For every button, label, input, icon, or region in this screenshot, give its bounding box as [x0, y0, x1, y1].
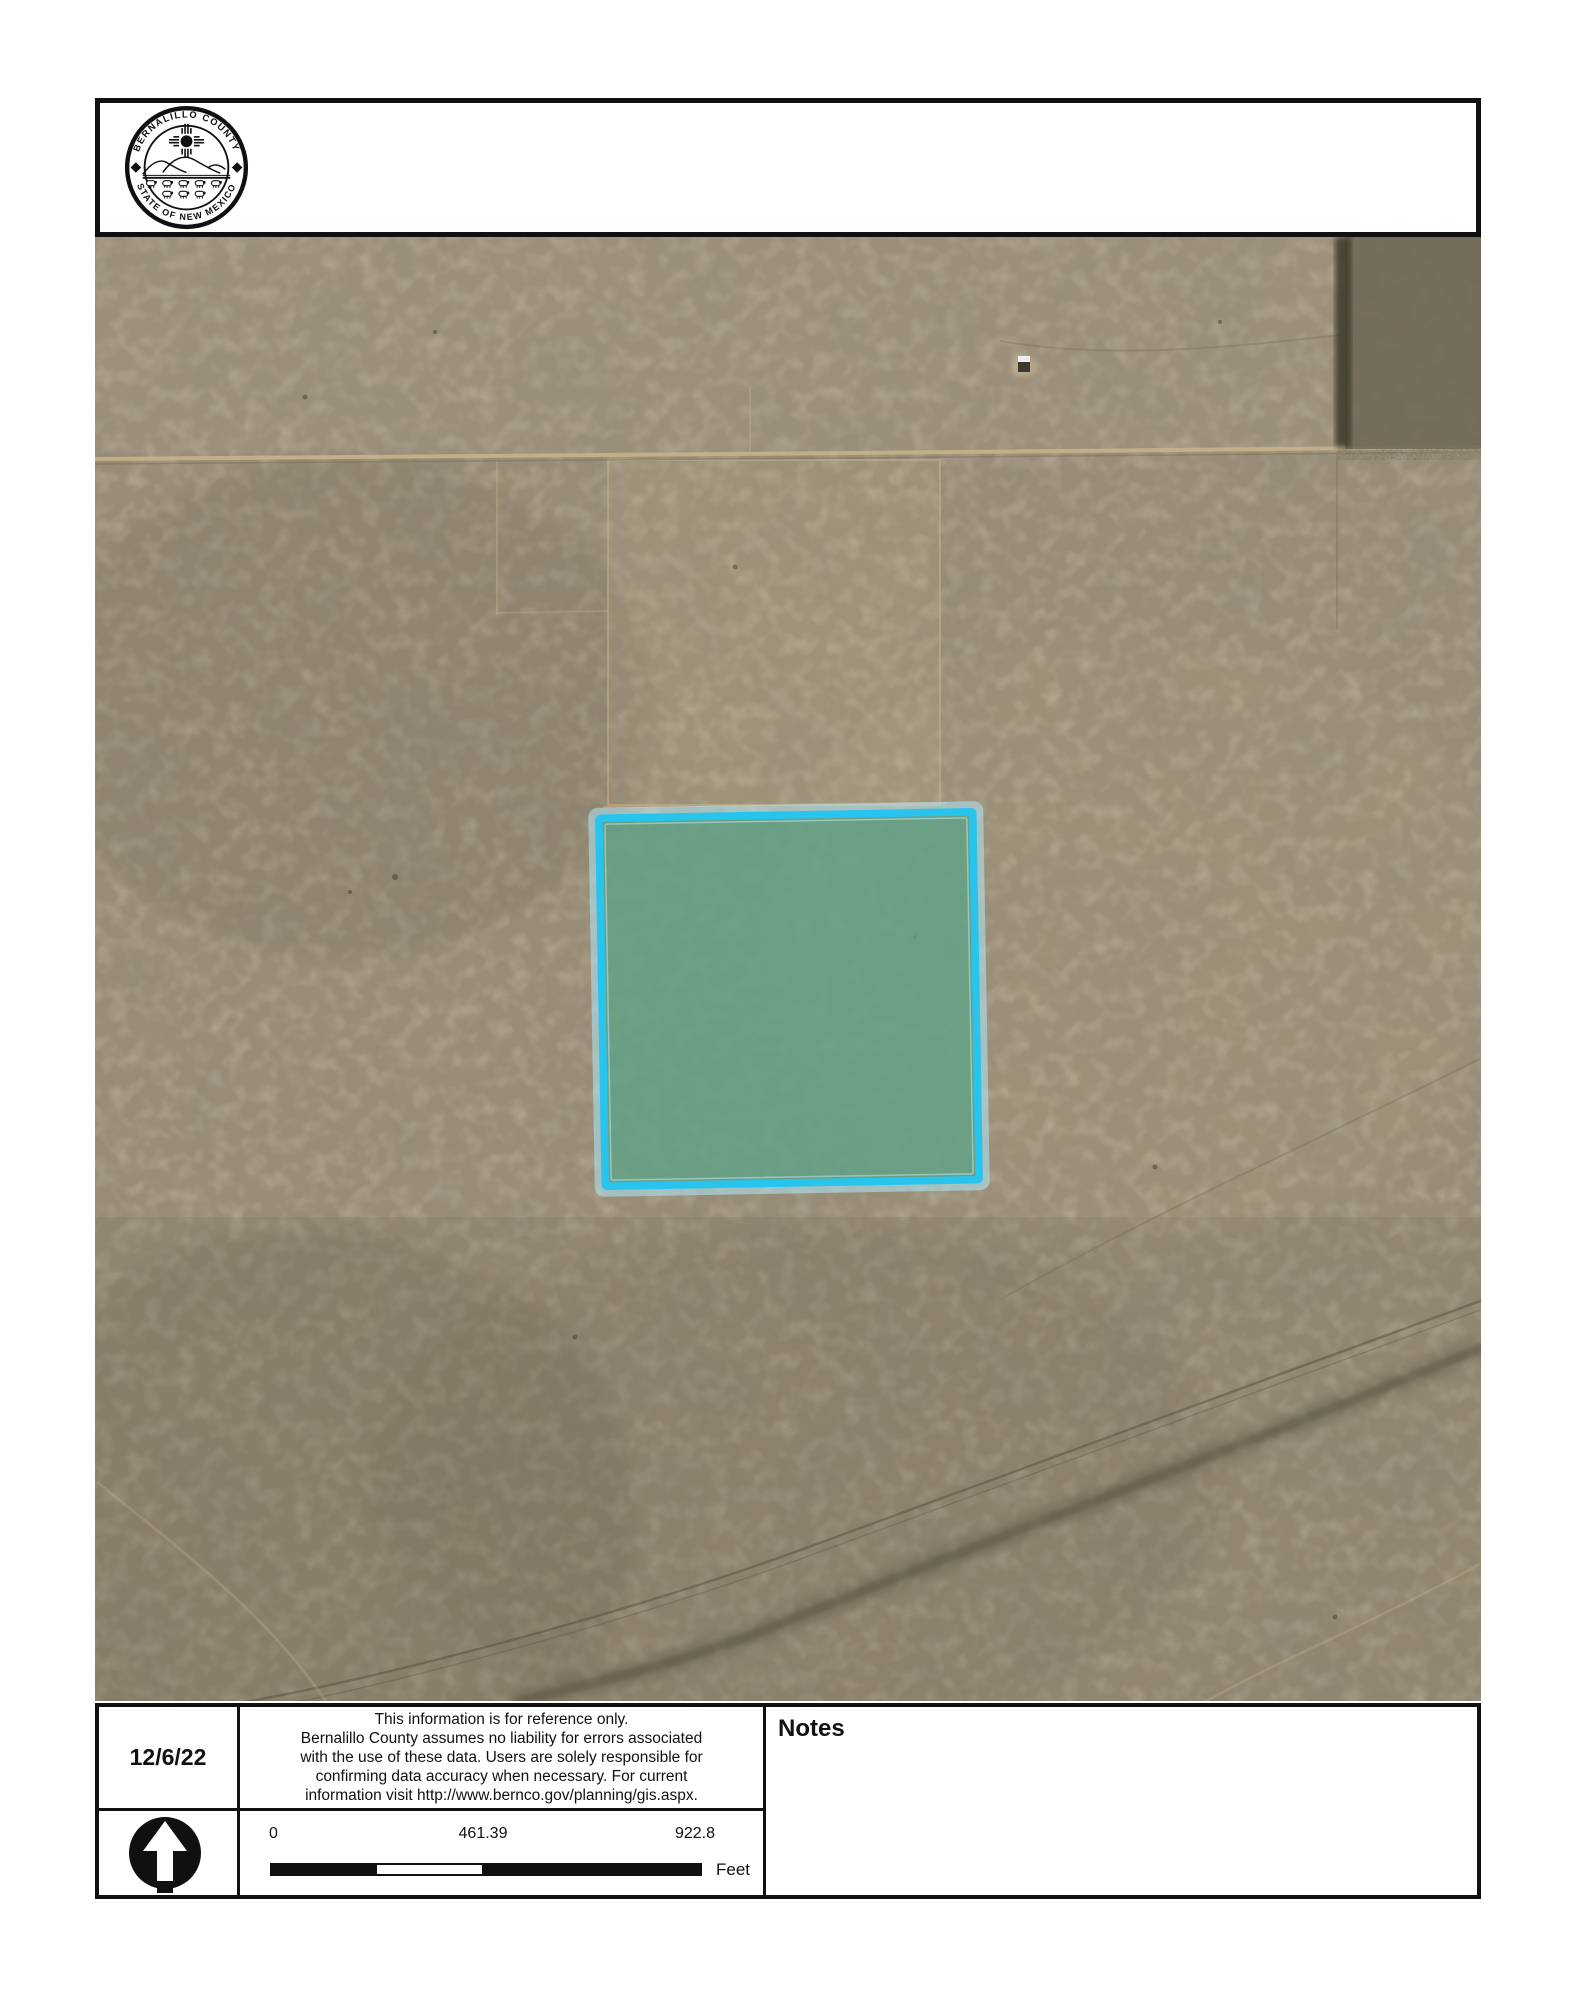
aerial-map: [95, 237, 1481, 1701]
aerial-imagery: [95, 237, 1481, 1701]
dark-vegetation-patch: [1335, 237, 1481, 449]
scale-label-start: 0: [269, 1825, 278, 1843]
map-date: 12/6/22: [99, 1707, 240, 1811]
notes-label: Notes: [778, 1715, 845, 1742]
disclaimer: This information is for reference only. …: [240, 1707, 766, 1811]
scale-bar-cell: 0 461.39 922.8 Feet: [240, 1811, 766, 1895]
scale-bar: [270, 1863, 702, 1876]
north-arrow-cell: [99, 1811, 240, 1895]
header-bar: BERNALILLO COUNTY STATE OF NEW MEXICO: [95, 98, 1481, 237]
disclaimer-line: confirming data accuracy when necessary.…: [316, 1767, 688, 1786]
county-seal: BERNALILLO COUNTY STATE OF NEW MEXICO: [124, 105, 249, 230]
scale-label-mid: 461.39: [459, 1825, 508, 1843]
map-sheet: BERNALILLO COUNTY STATE OF NEW MEXICO: [0, 0, 1576, 2000]
scale-label-end: 922.8: [675, 1825, 715, 1843]
disclaimer-line: Bernalillo County assumes no liability f…: [301, 1729, 702, 1748]
notes-panel: Notes: [766, 1707, 1477, 1895]
north-arrow-icon: [99, 1811, 237, 1895]
disclaimer-line: This information is for reference only.: [375, 1710, 629, 1729]
parcel-highlight: [595, 808, 984, 1191]
disclaimer-line: with the use of these data. Users are so…: [300, 1748, 702, 1767]
disclaimer-line: information visit http://www.bernco.gov/…: [305, 1786, 698, 1805]
scale-unit: Feet: [716, 1860, 750, 1880]
scale-bar-white-segment: [377, 1865, 482, 1874]
footer-bar: 12/6/22 This information is for referenc…: [95, 1703, 1481, 1899]
parcel-boundary: [599, 812, 979, 1186]
